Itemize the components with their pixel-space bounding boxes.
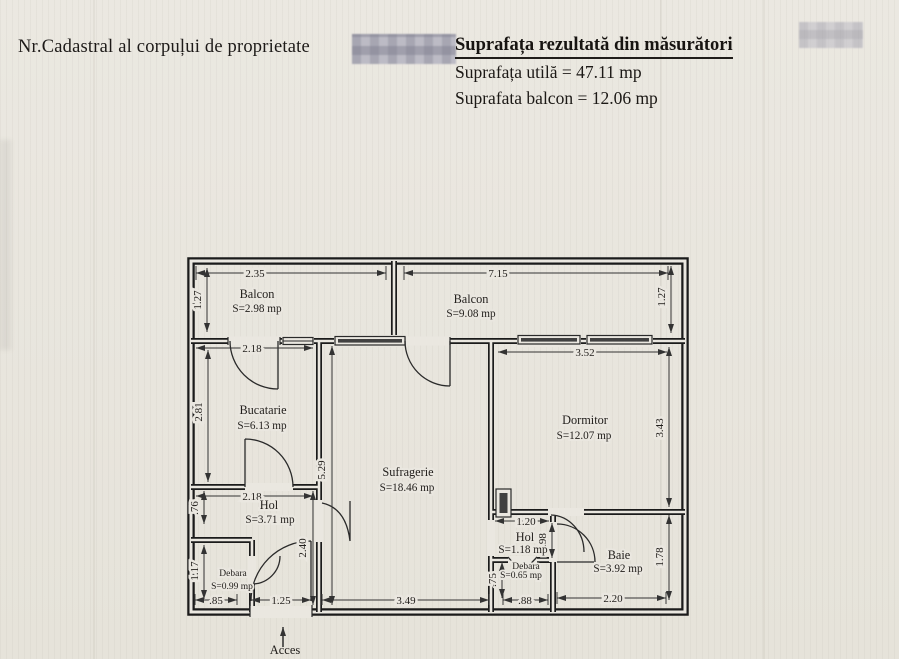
dim-label: 7.15	[488, 268, 508, 280]
dim-label: 5.29	[316, 460, 328, 480]
room-name: Dormitor	[562, 413, 608, 427]
room-area: S=9.08 mp	[446, 308, 496, 320]
room-name: Debara	[219, 569, 247, 579]
dim-label: 1.27	[656, 287, 668, 307]
dim-label: .75	[487, 573, 499, 587]
room-name: Baie	[608, 548, 631, 562]
kitchen-door	[245, 439, 293, 487]
room-name: Balcon	[454, 292, 489, 306]
dim-label: .88	[518, 595, 532, 607]
room-name: Sufragerie	[382, 465, 434, 479]
room-name: Hol	[516, 530, 535, 544]
dim-label: 2.81	[193, 402, 205, 421]
room-area: S=3.71 mp	[245, 514, 295, 526]
room-area: S=12.07 mp	[557, 430, 612, 442]
dim-label: 1.20	[516, 516, 536, 528]
bathroom-door	[557, 524, 595, 562]
room-name: Bucatarie	[239, 403, 287, 417]
room-name: Hol	[260, 498, 279, 512]
dim-label: 1.78	[654, 547, 666, 567]
dim-label: 3.49	[396, 595, 416, 607]
room-area: S=6.13 mp	[237, 420, 287, 432]
dim-label: 2.20	[603, 593, 623, 605]
scanned-document-page: Nr.Cadastral al corpuļui de proprietate …	[0, 0, 899, 659]
livingroom-balcony-door	[405, 341, 450, 386]
dim-label: .76	[189, 501, 201, 515]
floor-plan-drawing: 2.35 1.27 7.15 1.27 2.18 2.81 3.52 3.43 …	[0, 0, 899, 659]
storage-left-door	[252, 556, 280, 584]
access-indicator: Acces	[270, 627, 301, 657]
room-area: S=1.18 mp	[498, 544, 548, 556]
dim-label: 1.17	[189, 561, 201, 581]
dim-label: 3.52	[575, 347, 594, 359]
dim-label: .85	[209, 595, 223, 607]
room-area: S=3.92 mp	[593, 563, 643, 575]
room-name: Balcon	[240, 287, 275, 301]
dim-label: 3.43	[654, 418, 666, 438]
access-label: Acces	[270, 643, 301, 657]
dim-label: 1.27	[192, 290, 204, 310]
dim-label: 2.40	[297, 538, 309, 558]
room-labels: Balcon S=2.98 mp Balcon S=9.08 mp Bucata…	[211, 287, 643, 592]
room-area: S=0.65 mp	[500, 571, 542, 581]
room-area: S=0.99 mp	[211, 582, 253, 592]
room-area: S=2.98 mp	[232, 303, 282, 315]
dim-label: 2.18	[242, 343, 262, 355]
hall-livingroom-door	[322, 501, 350, 541]
dim-label: 2.35	[245, 268, 265, 280]
dim-label: 1.25	[271, 595, 291, 607]
room-area: S=18.46 mp	[380, 482, 435, 494]
